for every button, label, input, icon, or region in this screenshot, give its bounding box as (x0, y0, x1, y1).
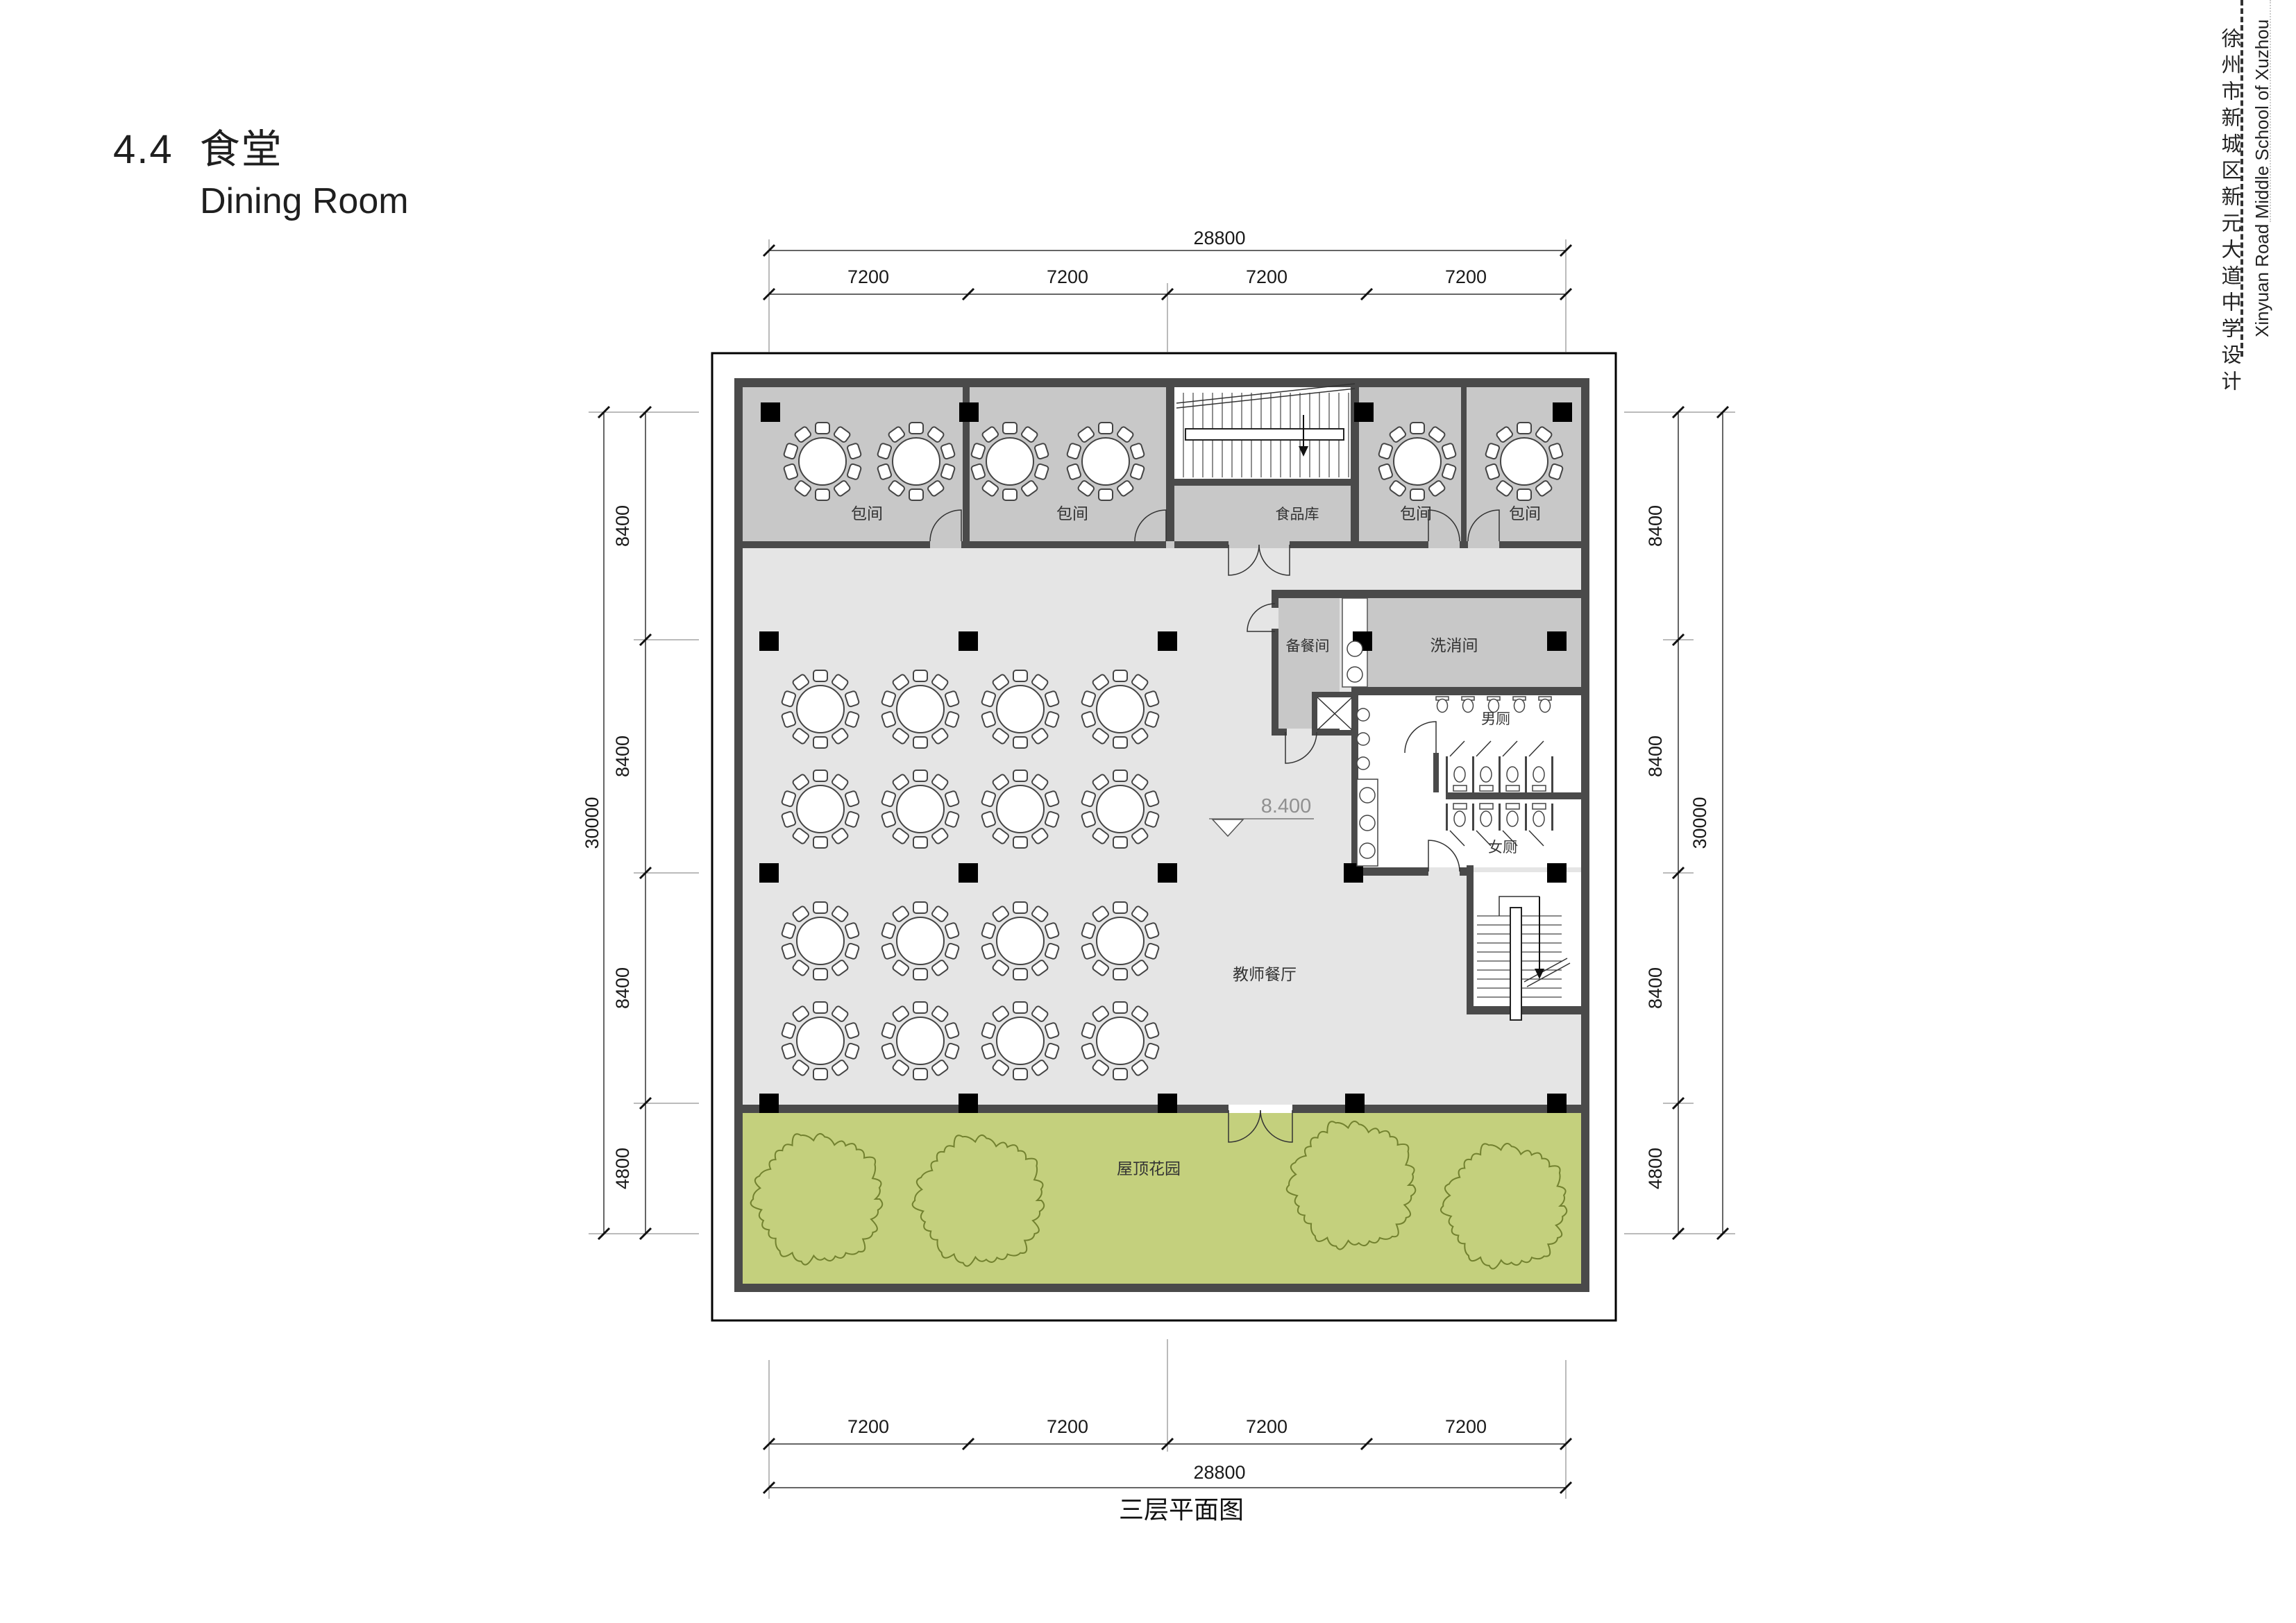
column (1547, 1094, 1567, 1113)
column (759, 863, 779, 883)
wall (1174, 541, 1229, 548)
dim-bottom-seg4: 7200 (1445, 1416, 1487, 1437)
dim-left-seg1: 8400 (612, 505, 633, 547)
wall (961, 541, 1166, 548)
urinal (1513, 697, 1526, 713)
room-label-male-toilet: 男厕 (1481, 711, 1510, 727)
column (759, 631, 779, 651)
sink (1360, 815, 1375, 831)
room-label-washing: 洗消间 (1430, 636, 1478, 654)
wall (1460, 541, 1468, 548)
dim-right-seg4: 4800 (1645, 1148, 1666, 1189)
room-label-private2: 包间 (1056, 504, 1088, 522)
dim-bottom-total: 28800 (1193, 1462, 1245, 1483)
dim-bottom-seg3: 7200 (1246, 1416, 1288, 1437)
dim-top-seg3: 7200 (1246, 266, 1288, 287)
wall (1581, 378, 1589, 1292)
dim-right-seg3: 8400 (1645, 967, 1666, 1009)
column (1345, 1094, 1365, 1113)
wall (1433, 753, 1439, 792)
dim-top-seg2: 7200 (1047, 266, 1088, 287)
dim-right-seg2: 8400 (1645, 736, 1666, 777)
wall (1174, 479, 1351, 486)
drawing-sheet: 4.4食堂 Dining Room 徐州市新城区新元大道中学设计 Xinyuan… (0, 0, 2296, 1623)
wall (1272, 590, 1581, 598)
dim-bottom-seg1: 7200 (847, 1416, 889, 1437)
sink (1347, 641, 1362, 656)
wall (1499, 541, 1581, 548)
dim-left-total: 30000 (582, 797, 602, 849)
room-label-private1: 包间 (851, 504, 883, 522)
column (1158, 631, 1177, 651)
floor-plan: 包间 包间 包间 包间 食品库 备餐间 洗消间 男厕 女厕 教师餐厅 屋顶花园 … (0, 0, 2296, 1623)
sink (1357, 757, 1369, 770)
room-label-teachers-dining: 教师餐厅 (1233, 965, 1297, 983)
sink (1360, 843, 1375, 858)
room-label-private4: 包间 (1509, 504, 1541, 522)
floor-area (1174, 486, 1351, 548)
dim-left-seg3: 8400 (612, 967, 633, 1009)
room-label-female-toilet: 女厕 (1488, 840, 1517, 856)
column (959, 631, 978, 651)
dim-left-seg2: 8400 (612, 736, 633, 777)
dim-top-seg4: 7200 (1445, 266, 1487, 287)
room-label-private3: 包间 (1400, 504, 1432, 522)
room-label-food-storage: 食品库 (1276, 507, 1319, 522)
column (761, 402, 780, 422)
wall (1272, 729, 1287, 736)
sink (1357, 708, 1369, 721)
column (1553, 402, 1572, 422)
sink (1360, 788, 1375, 803)
wall (1166, 387, 1174, 541)
dim-top-seg1: 7200 (847, 266, 889, 287)
urinal (1487, 697, 1500, 713)
column (959, 1094, 978, 1113)
dim-right-seg1: 8400 (1645, 505, 1666, 547)
sink (1357, 733, 1369, 745)
wall (734, 378, 743, 1292)
wall (1312, 730, 1358, 736)
column (1547, 863, 1567, 883)
column (759, 1094, 779, 1113)
column (959, 402, 979, 422)
urinal (1462, 697, 1474, 713)
wall (1460, 867, 1467, 876)
wall (734, 1284, 1589, 1292)
column (1158, 863, 1177, 883)
wall (1312, 692, 1317, 736)
column (1354, 402, 1374, 422)
column (1547, 631, 1567, 651)
urinal (1436, 697, 1449, 713)
plan-caption: 三层平面图 (1119, 1495, 1244, 1524)
wall (1272, 629, 1278, 736)
urinal (1539, 697, 1551, 713)
elevation-value: 8.400 (1261, 795, 1312, 817)
wall (1351, 687, 1581, 695)
wall (1446, 792, 1581, 799)
column (959, 863, 978, 883)
wall (1312, 692, 1358, 697)
wall (734, 378, 1589, 387)
wall (1467, 865, 1474, 1014)
wall (743, 1105, 1229, 1113)
dim-left-seg4: 4800 (612, 1148, 633, 1189)
wall (1461, 387, 1467, 541)
dim-right-total: 30000 (1689, 797, 1710, 849)
wall (1467, 1006, 1589, 1014)
dim-bottom-seg2: 7200 (1047, 1416, 1088, 1437)
wall (1292, 1105, 1581, 1113)
room-label-prep: 备餐间 (1286, 638, 1330, 654)
column (1158, 1094, 1177, 1113)
wall (743, 541, 930, 548)
room-label-roof-garden: 屋顶花园 (1117, 1159, 1181, 1178)
floor-area (743, 1113, 1581, 1284)
floor-area (1358, 695, 1581, 867)
wall (1272, 598, 1278, 608)
dim-top-total: 28800 (1193, 228, 1245, 248)
sink (1347, 667, 1362, 682)
wall (1290, 541, 1428, 548)
